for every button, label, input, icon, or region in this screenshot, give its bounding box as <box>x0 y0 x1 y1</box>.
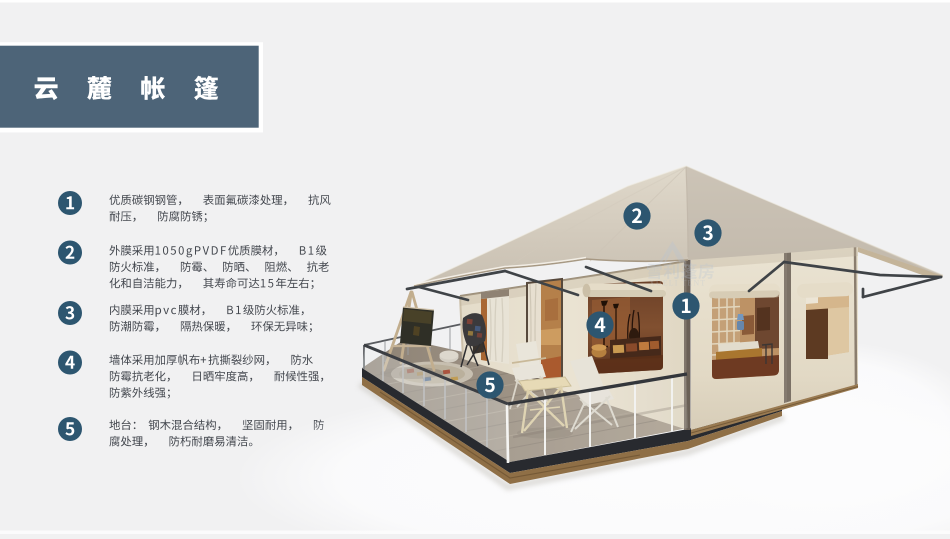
svg-text:XUELI TENT: XUELI TENT <box>649 279 706 288</box>
